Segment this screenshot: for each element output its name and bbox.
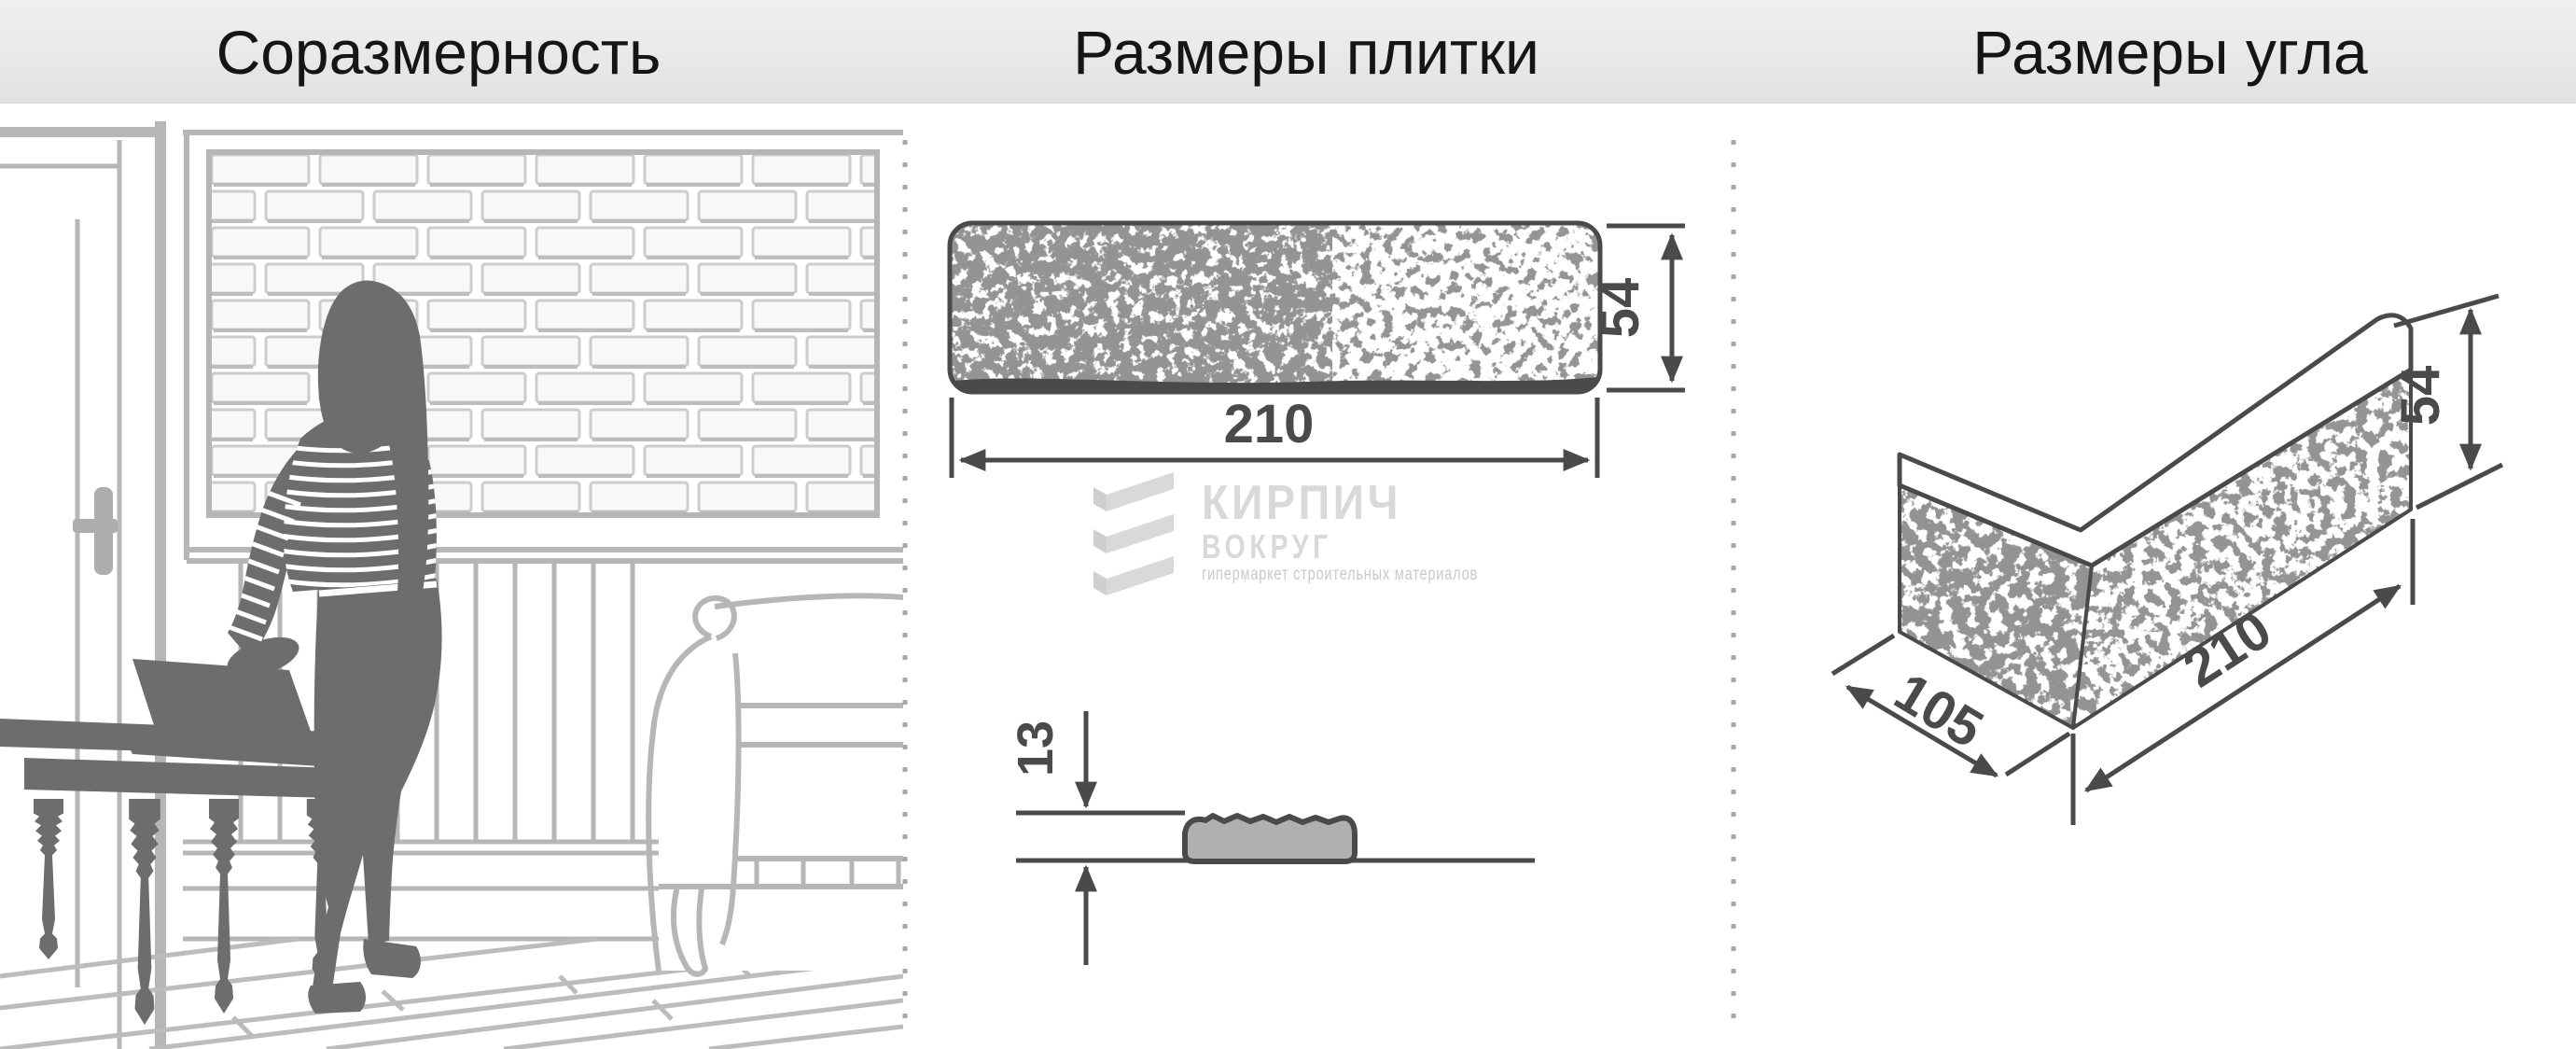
ext-line-lower bbox=[2006, 734, 2069, 775]
sofa-fill bbox=[659, 605, 903, 971]
laptop-screen bbox=[132, 659, 313, 739]
laptop bbox=[119, 659, 334, 767]
logo-word-kirpich: КИРПИЧ bbox=[1202, 476, 1401, 530]
sofa-back-top bbox=[715, 595, 903, 607]
logo-tagline: гипермаркет строительных материалов bbox=[1202, 565, 1478, 584]
woman-legs bbox=[313, 579, 442, 987]
corner-piece-drawing bbox=[1900, 315, 2411, 728]
tile-length-label: 210 bbox=[1224, 394, 1315, 455]
tile-face-drawing bbox=[950, 223, 1600, 392]
ext-line-top bbox=[2394, 296, 2499, 326]
corner-height-label: 54 bbox=[2390, 366, 2451, 427]
tile-texture-sparse bbox=[950, 223, 1600, 392]
corner-dimensions-panel: 54 210 105 bbox=[1832, 296, 2502, 825]
header-title-tile-dimensions: Размеры плитки bbox=[1073, 18, 1539, 87]
logo-word-vokrug: ВОКРУГ bbox=[1202, 527, 1332, 566]
proportionality-scene bbox=[0, 121, 903, 1049]
tile-profile-shape bbox=[1185, 816, 1355, 861]
logo-brick-icon bbox=[1093, 472, 1174, 595]
woman-foot-right bbox=[363, 939, 421, 978]
ext-line-bottom bbox=[2416, 465, 2502, 508]
door-frame-edge bbox=[155, 121, 166, 1049]
sofa bbox=[648, 595, 903, 973]
ext-line-upper bbox=[1832, 636, 1894, 674]
woman-foot-left bbox=[308, 982, 366, 1014]
header-title-corner-dimensions: Размеры угла bbox=[1972, 18, 2368, 87]
tile-thickness-label: 13 bbox=[1008, 720, 1064, 776]
tile-dimensions-panel: 210 54 КИРПИЧ ВОКРУГ гипермаркет строите… bbox=[950, 223, 1685, 965]
brick-product-infographic: Соразмерность Размеры плитки Размеры угл… bbox=[0, 0, 2576, 1049]
tile-height-label: 54 bbox=[1590, 278, 1650, 339]
infographic-canvas: Соразмерность Размеры плитки Размеры угл… bbox=[0, 0, 2576, 1049]
door-handle-grip bbox=[94, 487, 113, 575]
tile-thickness-section: 13 bbox=[1008, 711, 1535, 965]
brand-logo: КИРПИЧ ВОКРУГ гипермаркет строительных м… bbox=[1093, 472, 1478, 595]
header-title-proportionality: Соразмерность bbox=[216, 18, 661, 87]
header-band: Соразмерность Размеры плитки Размеры угл… bbox=[0, 0, 2576, 104]
door-frame-top bbox=[0, 127, 166, 137]
